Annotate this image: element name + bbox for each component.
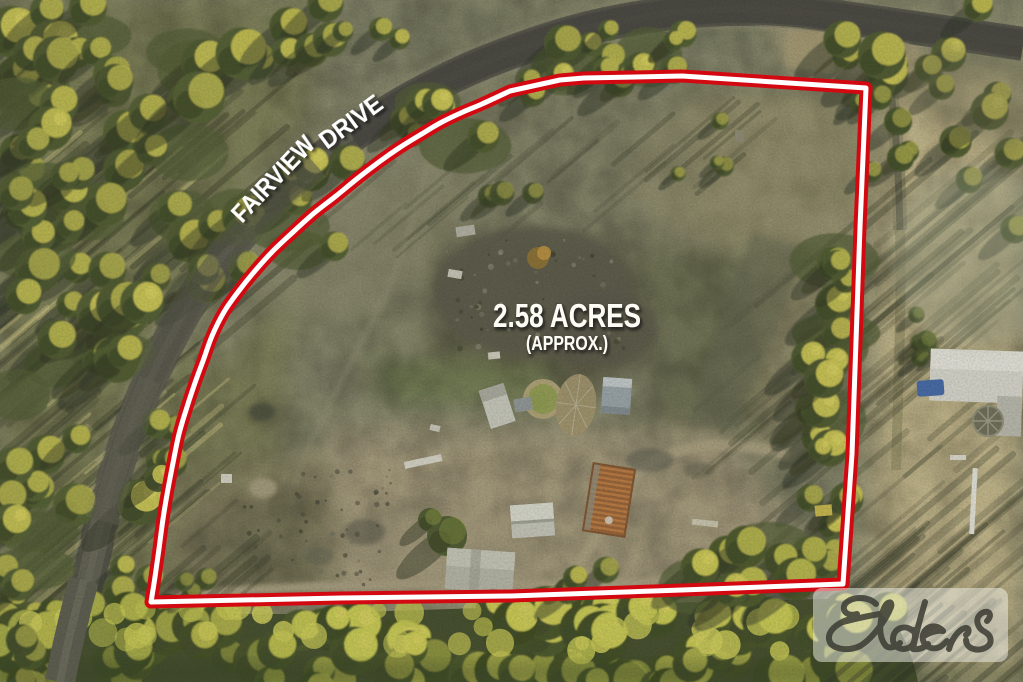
svg-text:2.58 ACRES: 2.58 ACRES bbox=[493, 297, 641, 334]
svg-text:(APPROX.): (APPROX.) bbox=[526, 333, 608, 355]
